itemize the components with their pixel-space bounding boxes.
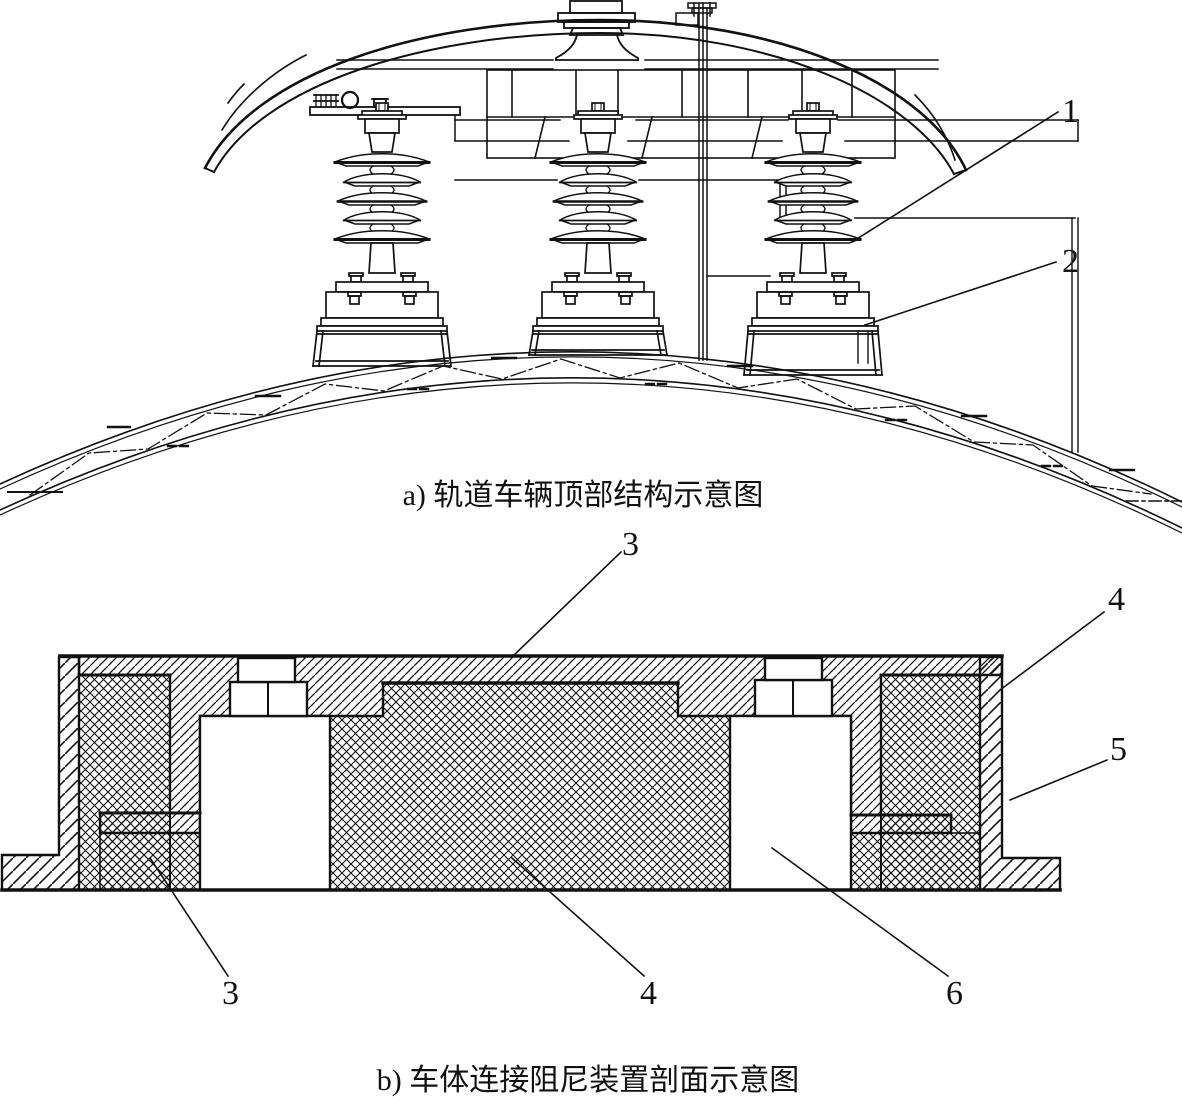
callout-5: 5 [1110,731,1127,768]
vertical-pole [676,3,770,360]
caption-panel-a: a) 轨道车辆顶部结构示意图 [403,479,764,512]
caption-panel-b: b) 车体连接阻尼装置剖面示意图 [377,1064,800,1097]
callout-3-bottom: 3 [222,975,239,1012]
left-bolt-shaft [200,716,330,890]
post-insulator [744,103,882,375]
right-bolt-shaft [730,716,851,890]
central-bell-insulator [556,1,638,60]
post-insulators [313,103,882,375]
callout-4-top-right: 4 [1108,581,1125,618]
callout-2: 2 [1062,243,1079,280]
callout-3-top: 3 [622,526,639,563]
figure-a-roof-structure [0,1,1182,533]
post-insulator [313,103,451,366]
damper-under-right-lbar [851,833,980,890]
patent-figure-page: 1 2 a) 轨道车辆顶部结构示意图 [0,0,1182,1102]
callout-6: 6 [946,975,963,1012]
outer-frame-right [980,657,1060,890]
callout-1: 1 [1062,93,1079,130]
damper-block-center [330,683,730,890]
damper-under-left-lbar [100,833,200,890]
callout-4-bottom: 4 [640,975,657,1012]
left-bolt-head [238,658,295,682]
technical-drawing: 1 2 a) 轨道车辆顶部结构示意图 [0,0,1182,1102]
figure-b-damper-section [2,552,1107,976]
right-bolt-head [765,658,822,680]
outer-frame-left [2,657,79,890]
